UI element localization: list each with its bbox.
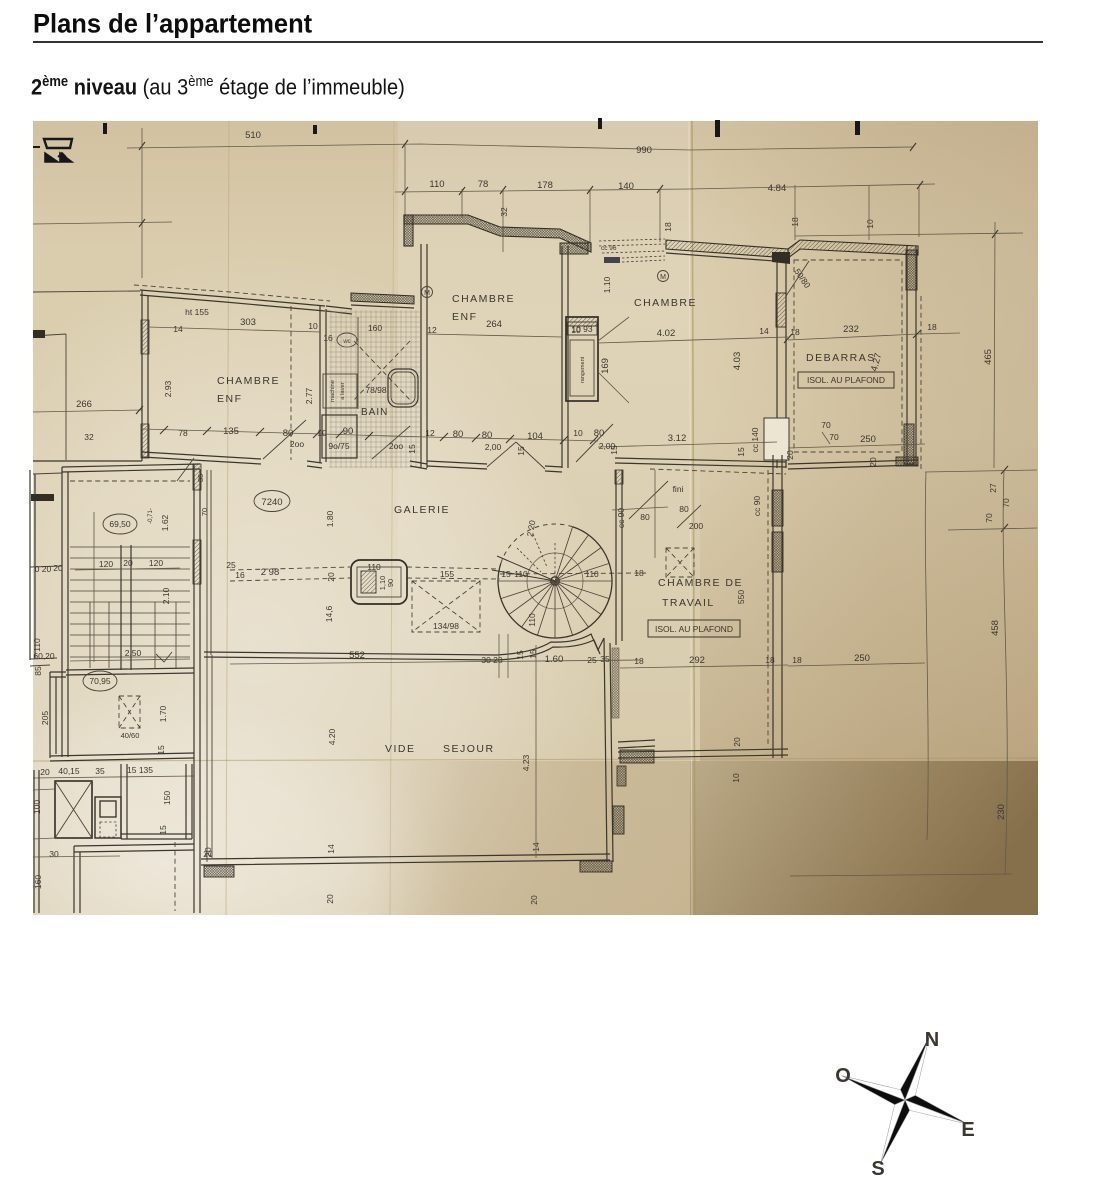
svg-text:TRAVAIL: TRAVAIL (662, 597, 715, 609)
svg-text:78: 78 (178, 428, 188, 438)
svg-text:80: 80 (283, 428, 294, 439)
svg-text:70: 70 (200, 508, 209, 516)
svg-text:15 135: 15 135 (127, 765, 153, 775)
svg-text:15: 15 (156, 745, 166, 755)
svg-text:0 20: 0 20 (35, 564, 52, 574)
svg-text:9o/75: 9o/75 (328, 441, 350, 451)
svg-text:30: 30 (49, 849, 59, 859)
svg-text:rangement: rangement (580, 356, 586, 383)
svg-text:20: 20 (203, 847, 213, 857)
svg-text:machine: machine (330, 380, 336, 402)
svg-text:2oo: 2oo (290, 439, 304, 449)
svg-text:BAIN: BAIN (361, 407, 388, 418)
svg-text:20: 20 (326, 572, 336, 582)
svg-text:178: 178 (537, 180, 553, 191)
svg-text:2.50: 2.50 (125, 648, 142, 658)
svg-text:110: 110 (367, 562, 381, 572)
svg-text:E: E (961, 1119, 974, 1141)
svg-text:20: 20 (732, 737, 742, 747)
svg-text:-0,71-: -0,71- (148, 508, 154, 524)
svg-text:15: 15 (407, 444, 417, 454)
svg-text:80: 80 (679, 504, 689, 514)
svg-text:SEJOUR: SEJOUR (443, 743, 495, 755)
svg-text:205: 205 (40, 711, 50, 725)
svg-text:78: 78 (478, 179, 489, 190)
svg-text:155: 155 (440, 569, 454, 579)
svg-text:250: 250 (854, 653, 870, 664)
svg-text:32: 32 (84, 432, 94, 442)
svg-text:160: 160 (368, 323, 382, 333)
svg-text:78/98: 78/98 (365, 385, 387, 395)
svg-text:1.80: 1.80 (325, 510, 335, 527)
svg-text:120: 120 (99, 559, 113, 569)
svg-text:292: 292 (689, 655, 705, 666)
svg-text:2.77: 2.77 (304, 387, 314, 404)
svg-text:4.23: 4.23 (521, 754, 531, 771)
svg-text:303: 303 (240, 317, 256, 328)
svg-text:M: M (424, 290, 430, 297)
svg-text:18: 18 (663, 222, 673, 232)
svg-text:18: 18 (790, 327, 800, 337)
svg-text:VIDE: VIDE (385, 743, 416, 755)
svg-text:10: 10 (308, 321, 318, 331)
svg-text:80: 80 (594, 428, 605, 439)
svg-text:S: S (871, 1158, 884, 1180)
svg-text:CHAMBRE: CHAMBRE (634, 297, 697, 309)
svg-text:20: 20 (868, 457, 878, 467)
svg-text:2 98: 2 98 (261, 567, 280, 578)
svg-text:14: 14 (173, 324, 183, 334)
svg-text:25: 25 (587, 655, 597, 665)
svg-text:90: 90 (343, 426, 354, 437)
svg-text:ISOL. AU PLAFOND: ISOL. AU PLAFOND (655, 624, 733, 634)
svg-text:1.62: 1.62 (160, 514, 170, 531)
svg-text:cc 90: cc 90 (752, 496, 762, 517)
svg-text:15: 15 (516, 446, 526, 456)
svg-text:GALERIE: GALERIE (394, 504, 450, 516)
svg-text:16: 16 (235, 570, 245, 580)
svg-text:266: 266 (76, 399, 92, 410)
svg-text:2,00: 2,00 (485, 442, 502, 452)
svg-text:150: 150 (162, 791, 172, 805)
svg-text:14,6: 14,6 (324, 605, 334, 622)
svg-text:110: 110 (32, 638, 42, 652)
svg-text:CHAMBRE DE: CHAMBRE DE (658, 577, 743, 589)
svg-text:cc 96: cc 96 (601, 245, 617, 252)
svg-text:10: 10 (731, 773, 741, 783)
svg-text:ht 155: ht 155 (185, 307, 209, 317)
svg-text:80: 80 (453, 429, 464, 440)
svg-text:60,20: 60,20 (33, 651, 55, 661)
svg-text:510: 510 (245, 130, 261, 141)
svg-text:32: 32 (499, 207, 509, 217)
svg-text:15: 15 (158, 825, 168, 835)
svg-text:DEBARRAS: DEBARRAS (806, 352, 876, 364)
svg-text:232: 232 (843, 324, 859, 335)
svg-text:ENF: ENF (452, 311, 478, 323)
svg-text:110: 110 (429, 179, 444, 190)
svg-text:12: 12 (425, 428, 435, 438)
svg-text:20: 20 (529, 895, 539, 905)
svg-text:70,95: 70,95 (89, 676, 111, 686)
svg-text:O: O (835, 1065, 851, 1087)
svg-text:18: 18 (927, 322, 937, 332)
svg-text:80: 80 (482, 430, 493, 441)
svg-text:15: 15 (515, 650, 525, 660)
svg-text:20: 20 (325, 894, 335, 904)
svg-text:990: 990 (636, 145, 652, 156)
svg-text:14: 14 (326, 844, 336, 854)
svg-text:264: 264 (486, 319, 502, 330)
svg-text:35: 35 (600, 654, 610, 664)
svg-text:70: 70 (984, 513, 994, 523)
svg-text:18: 18 (765, 655, 775, 665)
svg-text:2.10: 2.10 (161, 587, 171, 604)
svg-text:169: 169 (600, 358, 611, 374)
svg-text:70: 70 (1001, 498, 1011, 508)
svg-text:ENF: ENF (217, 393, 243, 405)
svg-text:110: 110 (527, 613, 537, 627)
svg-text:134/98: 134/98 (433, 621, 459, 631)
svg-text:CHAMBRE: CHAMBRE (452, 293, 515, 305)
svg-text:4.84: 4.84 (768, 183, 787, 194)
svg-text:27: 27 (988, 483, 998, 493)
svg-text:4.02: 4.02 (657, 328, 676, 339)
svg-text:15: 15 (609, 445, 619, 455)
svg-text:M: M (660, 274, 666, 281)
svg-text:70: 70 (821, 420, 831, 430)
svg-text:4.20: 4.20 (327, 728, 337, 745)
svg-text:69,50: 69,50 (109, 519, 131, 529)
svg-text:15: 15 (736, 447, 746, 457)
svg-text:15: 15 (501, 569, 511, 579)
svg-text:135: 135 (223, 426, 239, 437)
svg-text:1.60: 1.60 (545, 654, 564, 665)
svg-text:70: 70 (829, 432, 839, 442)
svg-text:18: 18 (634, 568, 644, 578)
svg-text:4.03: 4.03 (732, 352, 743, 371)
svg-text:20: 20 (785, 450, 795, 460)
svg-text:200: 200 (689, 521, 703, 531)
svg-text:25: 25 (226, 560, 236, 570)
svg-text:cc 140: cc 140 (750, 427, 760, 452)
svg-text:104: 104 (527, 431, 543, 442)
svg-text:230: 230 (996, 804, 1007, 820)
svg-text:N: N (925, 1029, 939, 1051)
svg-text:80: 80 (640, 512, 650, 522)
svg-text:10: 10 (573, 428, 583, 438)
svg-text:ISOL. AU PLAFOND: ISOL. AU PLAFOND (807, 375, 885, 385)
svg-text:cc 90: cc 90 (616, 508, 626, 529)
svg-text:18: 18 (634, 656, 644, 666)
svg-text:3.12: 3.12 (668, 433, 687, 444)
svg-text:140: 140 (618, 181, 634, 192)
svg-text:16: 16 (323, 333, 333, 343)
svg-text:7240: 7240 (261, 497, 282, 508)
svg-text:465: 465 (983, 349, 994, 365)
svg-text:40,15: 40,15 (58, 766, 80, 776)
svg-text:fini: fini (673, 484, 684, 494)
svg-text:90: 90 (386, 579, 395, 587)
svg-text:35: 35 (95, 766, 105, 776)
svg-text:a laver: a laver (340, 382, 346, 399)
svg-text:85: 85 (33, 666, 43, 676)
svg-text:2oo: 2oo (389, 441, 403, 451)
svg-text:10: 10 (865, 219, 875, 229)
svg-text:1.70: 1.70 (158, 705, 168, 722)
svg-text:120: 120 (149, 558, 163, 568)
svg-text:18: 18 (792, 655, 802, 665)
svg-text:458: 458 (990, 620, 1001, 636)
svg-text:12: 12 (427, 325, 437, 335)
svg-text:1.10: 1.10 (602, 276, 612, 293)
svg-text:20: 20 (40, 767, 50, 777)
svg-text:2.93: 2.93 (163, 380, 173, 397)
svg-text:10: 10 (571, 325, 581, 335)
svg-text:552: 552 (349, 650, 365, 661)
svg-text:250: 250 (860, 434, 876, 445)
svg-text:30 20: 30 20 (481, 655, 503, 665)
svg-text:40/60: 40/60 (121, 731, 140, 740)
svg-text:14: 14 (759, 326, 769, 336)
svg-text:CHAMBRE: CHAMBRE (217, 375, 280, 387)
svg-text:20: 20 (123, 558, 133, 568)
svg-text:550: 550 (736, 590, 746, 604)
